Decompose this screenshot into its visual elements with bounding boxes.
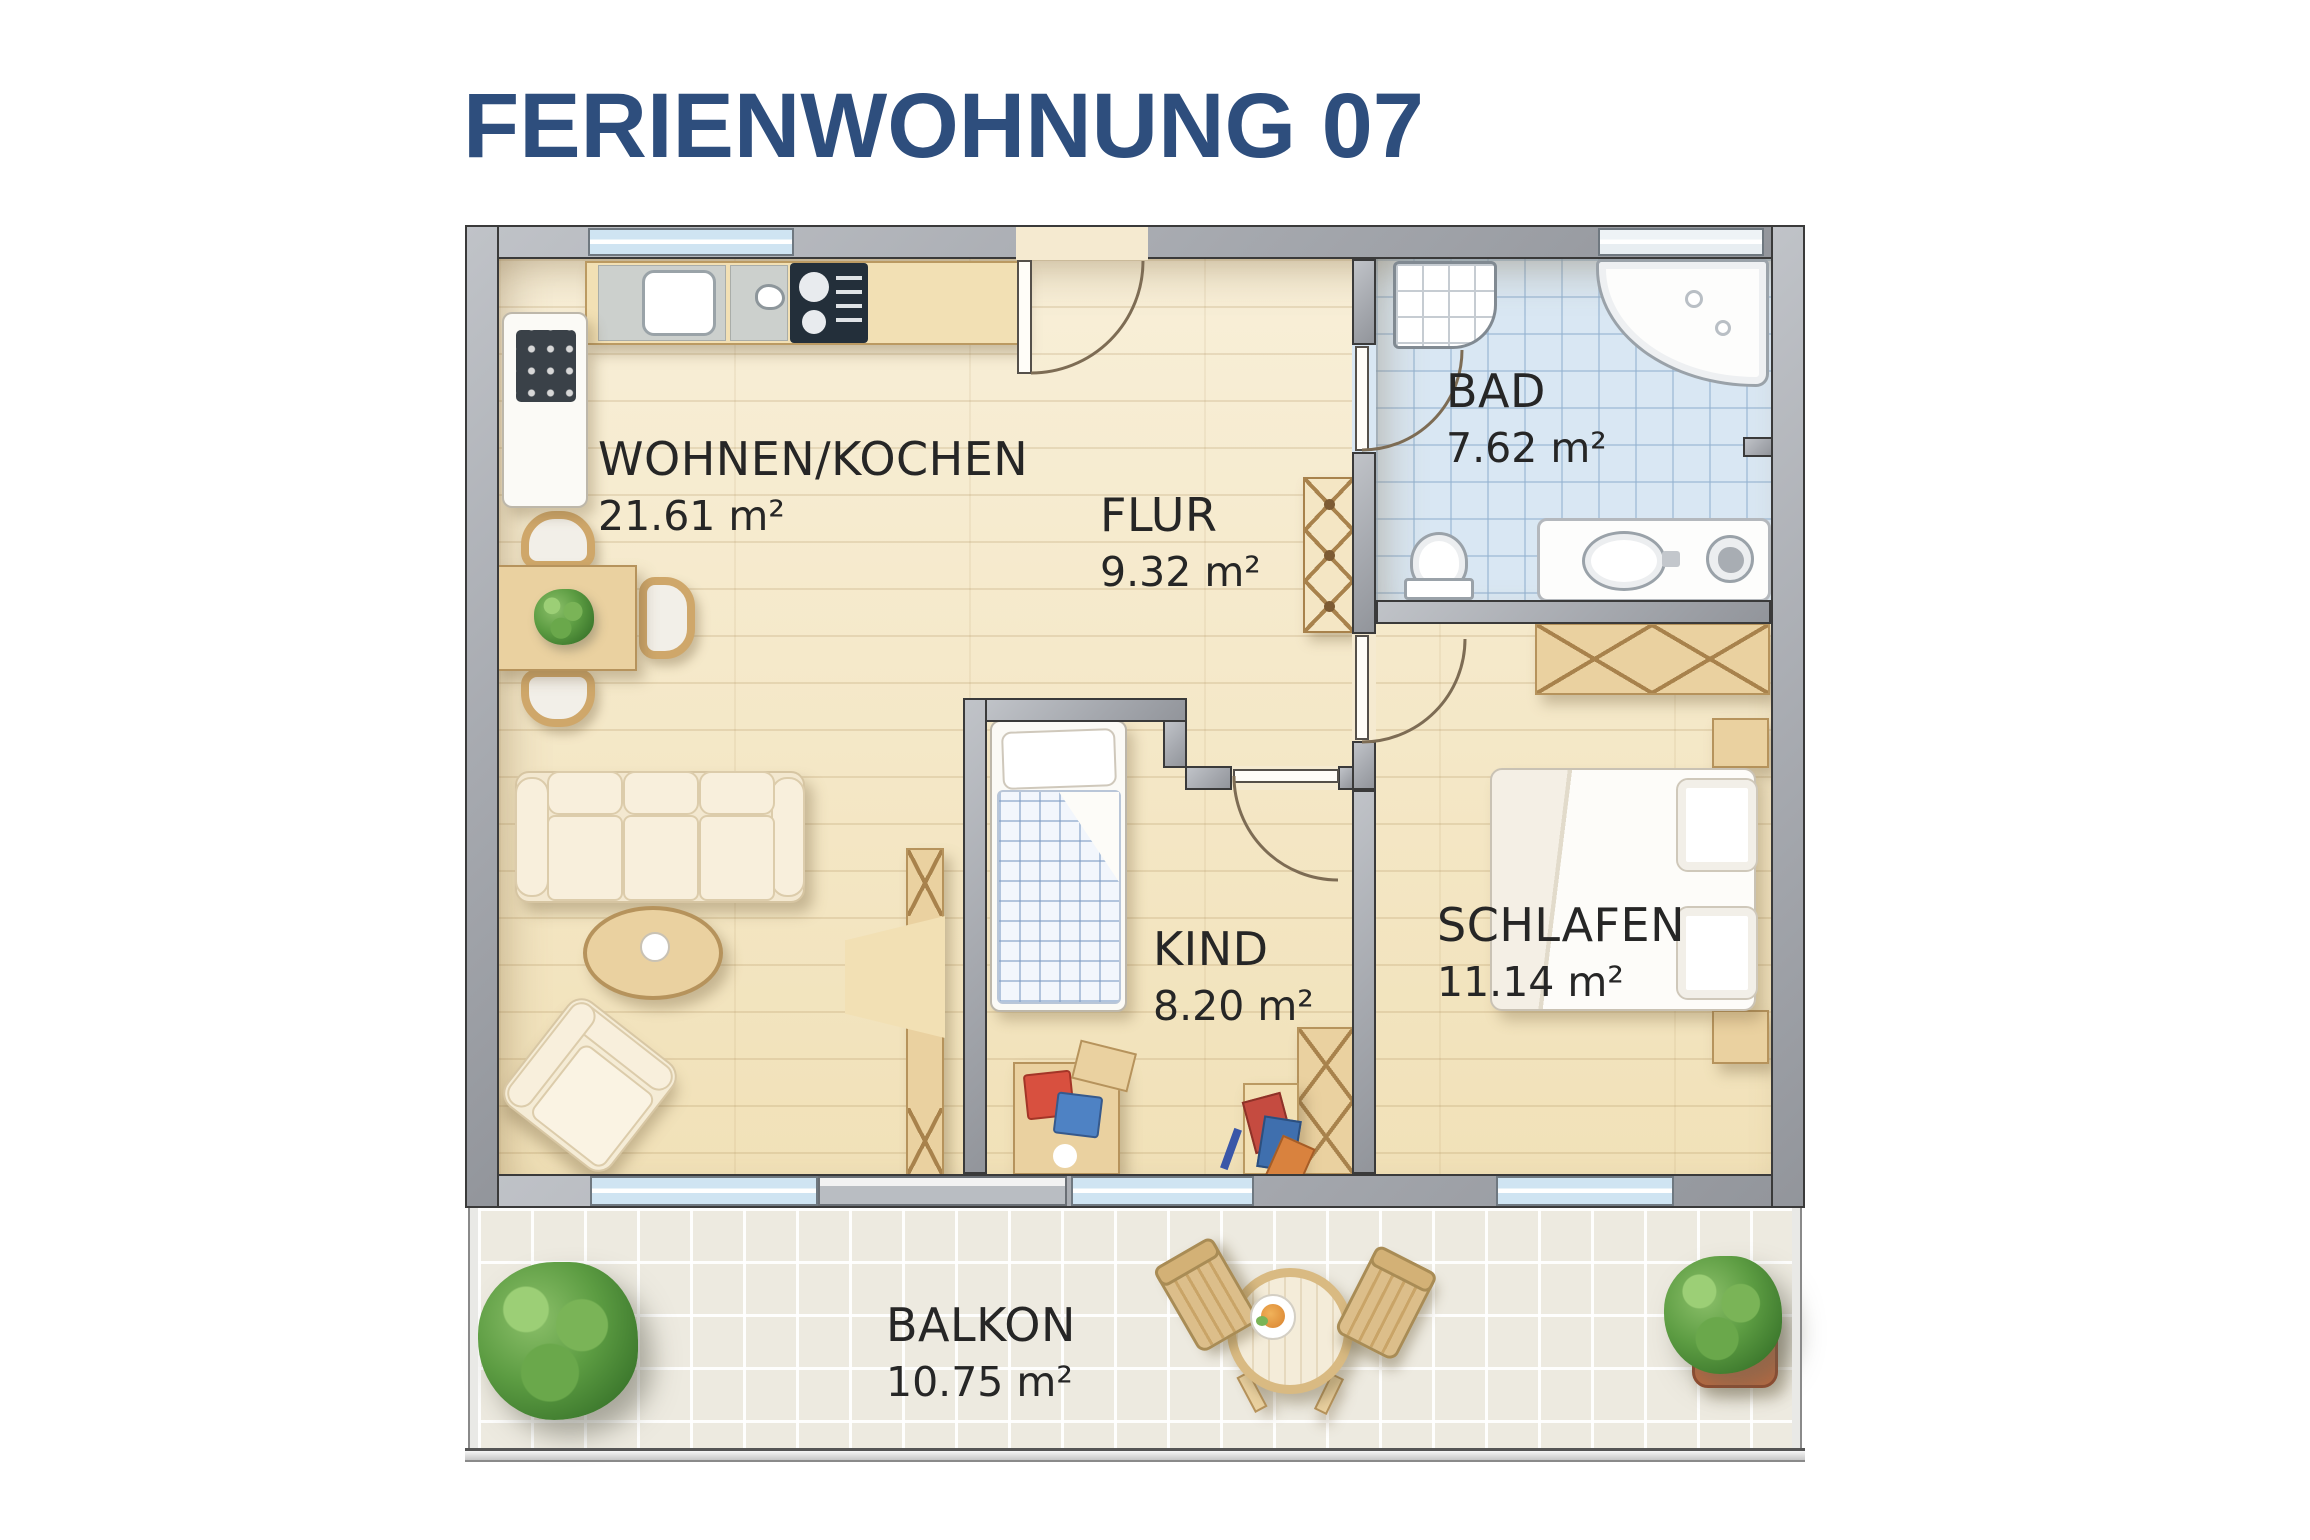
schlafen-balcony-window — [1496, 1176, 1674, 1206]
room-area: 7.62 m² — [1446, 422, 1607, 475]
room-label-kind: KIND 8.20 m² — [1153, 920, 1314, 1033]
room-name: WOHNEN/KOCHEN — [598, 430, 1028, 490]
tub-drain-icon — [1685, 290, 1703, 308]
burner-icon — [799, 272, 829, 302]
sofa-back-cushion — [547, 771, 623, 815]
wall-right — [1771, 225, 1805, 1208]
balcony-sliding-door — [818, 1176, 1067, 1206]
vanity — [1537, 518, 1771, 602]
sofa-armrest — [771, 777, 805, 897]
wall-flur-schlafen-stub — [1352, 741, 1376, 790]
kind-door-opening — [1232, 766, 1338, 790]
balcony-rail-left — [468, 1208, 478, 1448]
sofa-seat-cushion — [547, 815, 623, 901]
cooktop — [790, 263, 868, 343]
balcony-plant-right — [1664, 1256, 1782, 1374]
room-name: KIND — [1153, 920, 1314, 980]
sofa — [515, 771, 805, 903]
x-brace — [1652, 625, 1768, 693]
garnish-icon — [1256, 1316, 1268, 1326]
toilet-tank — [1404, 578, 1474, 600]
kitchen-sink — [642, 270, 716, 336]
nightstand — [1712, 718, 1769, 768]
vanity-faucet-icon — [1662, 551, 1680, 567]
schlafen-wardrobe — [1535, 623, 1770, 695]
cabinet-knob — [1324, 550, 1335, 561]
wall-kind-schlafen — [1352, 790, 1376, 1174]
room-label-balkon: BALKON 10.75 m² — [886, 1296, 1076, 1409]
room-label-bad: BAD 7.62 m² — [1446, 362, 1607, 475]
room-area: 9.32 m² — [1100, 546, 1261, 599]
kind-bed-blanket — [997, 790, 1121, 1004]
sofa-seat-cushion — [623, 815, 699, 901]
room-area: 8.20 m² — [1153, 980, 1314, 1033]
room-name: BALKON — [886, 1296, 1076, 1356]
kind-bed-pillow — [1001, 728, 1117, 790]
room-name: SCHLAFEN — [1437, 896, 1685, 956]
wall-left — [465, 225, 499, 1208]
room-label-flur: FLUR 9.32 m² — [1100, 486, 1261, 599]
kitchen-window — [588, 228, 794, 256]
x-brace — [1537, 625, 1652, 693]
burner-icon — [802, 310, 826, 334]
balcony-railing — [465, 1448, 1805, 1462]
bed-pillow — [1676, 778, 1758, 872]
cabinet-knob — [1324, 499, 1335, 510]
x-brace — [1299, 1029, 1353, 1101]
wall-kind-top — [985, 698, 1187, 722]
room-area: 10.75 m² — [886, 1356, 1076, 1409]
dining-chair — [639, 577, 695, 659]
dining-chair — [521, 511, 595, 569]
faucet-icon — [755, 284, 785, 310]
wall-bad-bottom — [1376, 600, 1771, 624]
sofa-armrest — [515, 777, 549, 897]
room-area: 21.61 m² — [598, 490, 1028, 543]
oven-grill-icon — [836, 276, 862, 330]
schlafen-door-opening — [1352, 634, 1376, 741]
sofa-back-cushion — [699, 771, 775, 815]
room-area: 11.14 m² — [1437, 956, 1685, 1009]
room-label-schlafen: SCHLAFEN 11.14 m² — [1437, 896, 1685, 1009]
kind-balcony-window — [1071, 1176, 1254, 1206]
balcony-floor — [478, 1208, 1792, 1448]
room-label-wohnen-kochen: WOHNEN/KOCHEN 21.61 m² — [598, 430, 1028, 543]
x-brace — [908, 850, 942, 916]
toy-dot — [1053, 1144, 1077, 1168]
toy-box — [1013, 1062, 1120, 1175]
page-title: FERIENWOHNUNG 07 — [463, 74, 1424, 179]
coffee-cup — [640, 932, 670, 962]
bed-pillow — [1676, 906, 1758, 1000]
x-brace — [908, 1108, 942, 1174]
bath-door-opening — [1352, 345, 1376, 452]
living-balcony-window — [590, 1176, 818, 1206]
wall-flur-bad-mid — [1352, 452, 1376, 634]
fridge — [502, 312, 588, 508]
sofa-back-cushion — [623, 771, 699, 815]
room-name: BAD — [1446, 362, 1607, 422]
table-plant — [534, 589, 594, 645]
floor-plan-page: FERIENWOHNUNG 07 — [0, 0, 2310, 1540]
cabinet-knob — [1324, 601, 1335, 612]
room-name: FLUR — [1100, 486, 1261, 546]
balcony-rail-right — [1792, 1208, 1802, 1448]
hall-cabinet — [1303, 477, 1355, 633]
toy-block-blue — [1053, 1091, 1104, 1138]
shower — [1393, 261, 1497, 349]
vanity-sink — [1582, 531, 1666, 591]
vanity-bowl — [1706, 535, 1754, 583]
bath-radiator-nib — [1743, 437, 1773, 457]
wall-hall-bottom — [1185, 766, 1232, 790]
wall-kind-step — [1163, 720, 1187, 768]
fridge-display-panel — [516, 330, 576, 402]
tub-faucet-icon — [1715, 320, 1731, 336]
wall-flur-bad-upper — [1352, 259, 1376, 345]
bowl-stone-icon — [1718, 547, 1744, 573]
balcony-plant-left — [478, 1262, 638, 1420]
breakfast-plate — [1250, 1294, 1296, 1340]
sofa-seat-cushion — [699, 815, 775, 901]
blanket-fold — [1059, 792, 1119, 882]
nightstand — [1712, 1010, 1769, 1064]
entrance-opening — [1016, 227, 1148, 260]
wall-kind-left — [963, 698, 987, 1174]
bath-window — [1598, 228, 1764, 256]
